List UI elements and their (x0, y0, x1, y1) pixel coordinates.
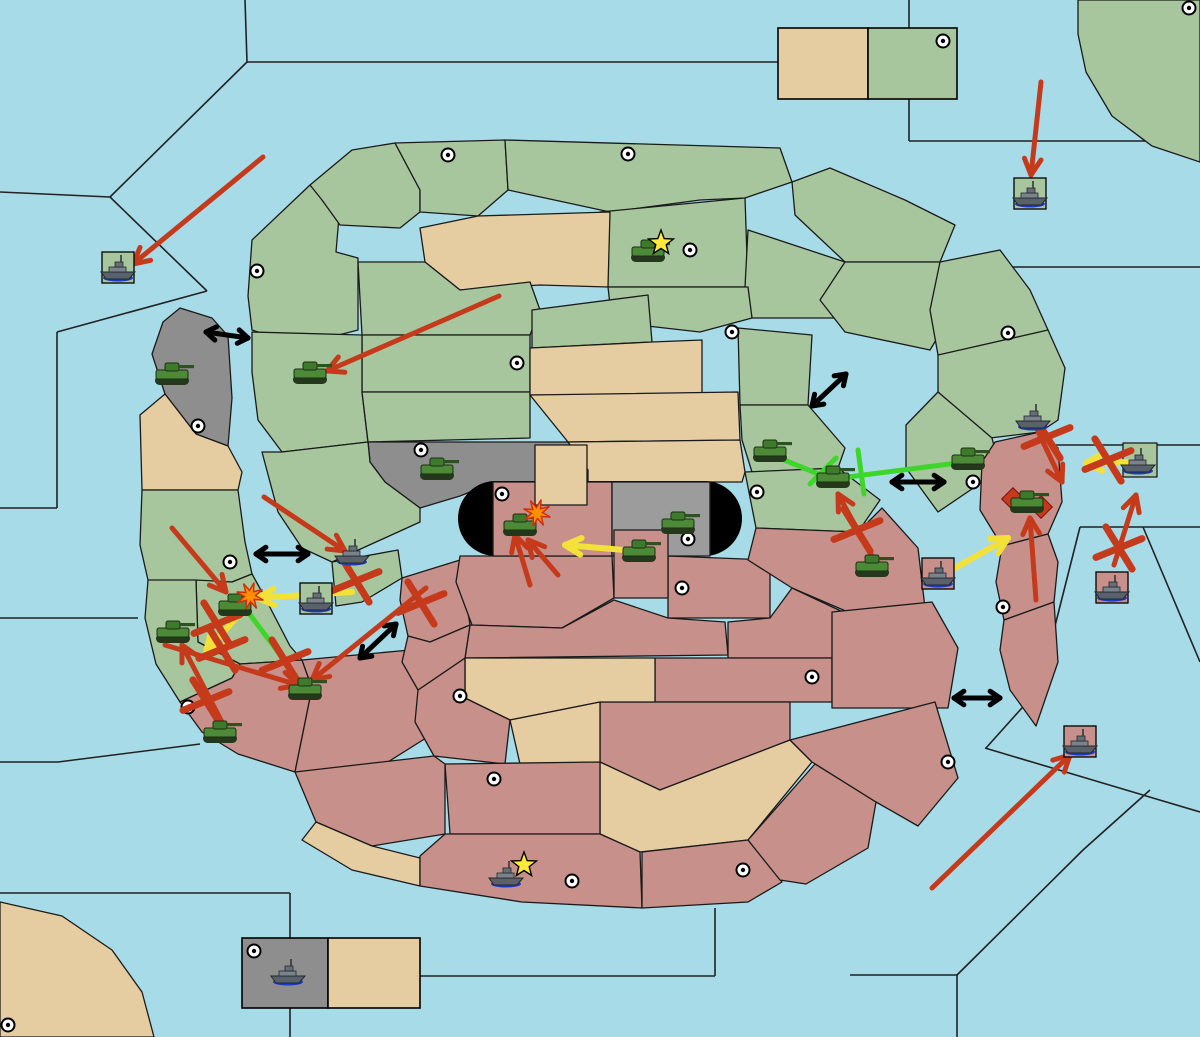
city-dot-helom (937, 35, 950, 48)
city-dot-qwil (454, 690, 467, 703)
unit-fleet-golf-von-pirh[interactable] (1063, 726, 1097, 757)
unit-fleet-golf-von-gawan[interactable] (101, 252, 135, 283)
legend-box-elfland[interactable] (778, 28, 868, 99)
city-dot-tel (511, 357, 524, 370)
city-dot-candolti (251, 265, 264, 278)
territory-wildall[interactable] (568, 440, 745, 482)
city-dot-zinnoberburg (566, 875, 579, 888)
city-dot-sund (676, 582, 689, 595)
territory-rotheim[interactable] (445, 762, 600, 834)
territory-olk[interactable] (530, 340, 702, 395)
map-canvas (0, 0, 1200, 1037)
city-dot-schloss-gruenburg (622, 148, 635, 161)
territory-bynn[interactable] (980, 432, 1062, 546)
territory-gurand[interactable] (252, 332, 368, 452)
city-dot-jadestadt (442, 149, 455, 162)
territory-korbia[interactable] (140, 490, 252, 582)
city-dot-westberg (496, 488, 509, 501)
territory-skr[interactable] (535, 445, 587, 505)
unit-fleet-kupfer-kueste[interactable] (1095, 572, 1129, 603)
city-dot-gawar (192, 420, 205, 433)
city-dot-abaun (248, 945, 261, 958)
city-dot-conno (1183, 2, 1196, 15)
city-dot-pirh (997, 601, 1010, 614)
legend-box-ornheim[interactable] (328, 938, 420, 1008)
territory-jossangia[interactable] (420, 212, 610, 290)
unit-fleet-ozean-von-doom[interactable] (1013, 178, 1047, 209)
city-dot-bridon (967, 476, 980, 489)
city-dot-kath (1002, 327, 1015, 340)
territory-orlon[interactable] (832, 602, 958, 708)
wargame-map-page (0, 0, 1200, 1037)
territory-gruenheim[interactable] (600, 198, 748, 287)
city-dot-ostberg (682, 533, 695, 546)
city-dot-losteria (942, 756, 955, 769)
city-dot-mellar (751, 486, 764, 499)
unit-fleet-bucht-des-ostens[interactable] (921, 558, 955, 589)
city-dot-gruenheim (684, 244, 697, 257)
city-dot-caraveccia (726, 326, 739, 339)
city-dot-karminstadt (737, 864, 750, 877)
territory-amphi[interactable] (738, 328, 812, 405)
territory-hugl[interactable] (530, 392, 740, 442)
city-dot-rotheim (488, 773, 501, 786)
city-dot-corws (2, 1019, 15, 1032)
city-dot-korbia (224, 556, 237, 569)
city-dot-neu-rom (806, 671, 819, 684)
territory-land-der-wiesel[interactable] (362, 392, 530, 442)
city-dot-norterend (415, 444, 428, 457)
unit-fleet-rotbucht[interactable] (299, 583, 333, 614)
